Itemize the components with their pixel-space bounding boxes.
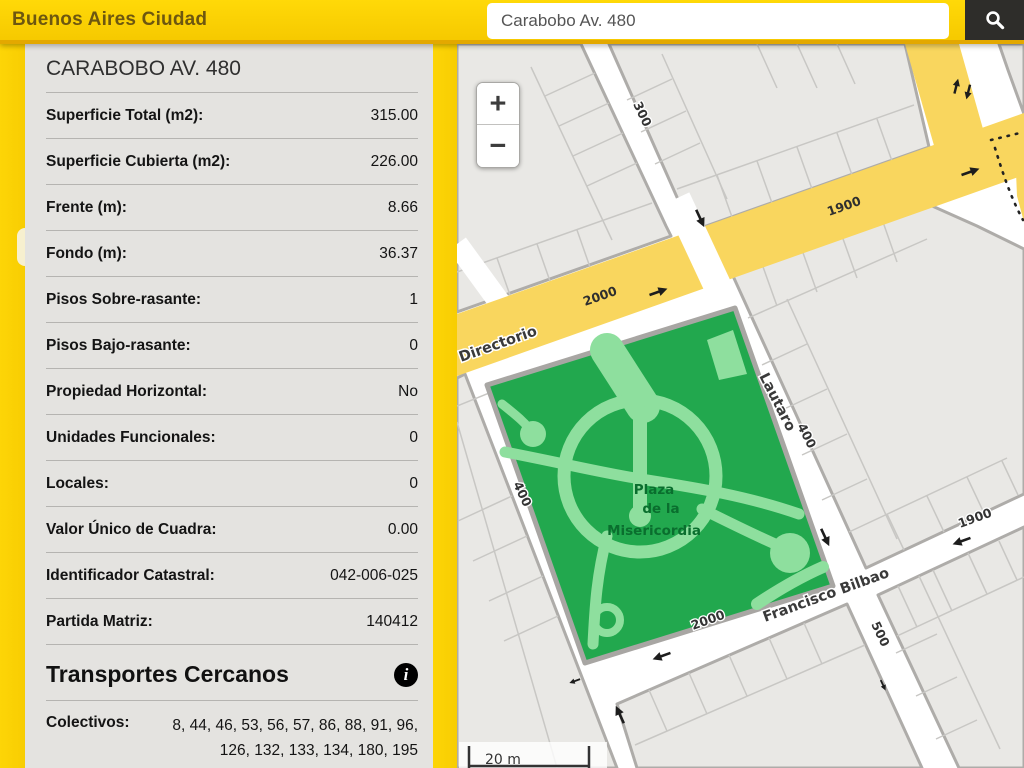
top-header: Buenos Aires Ciudad — [0, 0, 1024, 44]
row-label: Partida Matriz: — [46, 613, 153, 631]
search-input[interactable] — [487, 3, 949, 39]
app-window: Directorio 2000 1900 300 400 Lautaro 400… — [0, 0, 1024, 768]
table-row: Fondo (m): 36.37 — [46, 230, 418, 276]
row-label: Unidades Funcionales: — [46, 429, 216, 447]
row-label: Superficie Total (m2): — [46, 107, 203, 125]
row-value: 315.00 — [371, 107, 418, 125]
row-value: 226.00 — [371, 153, 418, 171]
search-icon — [971, 9, 1018, 31]
table-row: Propiedad Horizontal: No — [46, 368, 418, 414]
row-label: Pisos Sobre-rasante: — [46, 291, 201, 309]
row-label: Superficie Cubierta (m2): — [46, 153, 230, 171]
brand-logo[interactable]: Buenos Aires Ciudad — [12, 0, 207, 40]
parcel-info-panel: CARABOBO AV. 480 Superficie Total (m2): … — [25, 44, 433, 768]
plaza-circle-nw — [520, 421, 546, 447]
table-row: Superficie Total (m2): 315.00 — [46, 92, 418, 138]
row-value: 0 — [409, 475, 418, 493]
row-value: 140412 — [366, 613, 418, 631]
row-label: Fondo (m): — [46, 245, 127, 263]
table-row: Valor Único de Cuadra: 0.00 — [46, 506, 418, 552]
row-label: Identificador Catastral: — [46, 567, 215, 585]
table-row: Unidades Funcionales: 0 — [46, 414, 418, 460]
table-row: Pisos Bajo-rasante: 0 — [46, 322, 418, 368]
colectivos-value: 8, 44, 46, 53, 56, 57, 86, 88, 91, 96, 1… — [151, 714, 418, 764]
scale-label: 20 m — [485, 752, 521, 768]
table-row: Frente (m): 8.66 — [46, 184, 418, 230]
zoom-in-button[interactable]: + — [477, 83, 519, 125]
row-label: Frente (m): — [46, 199, 127, 217]
row-value: 0 — [409, 429, 418, 447]
row-value: No — [398, 383, 418, 401]
row-label: Propiedad Horizontal: — [46, 383, 207, 401]
table-row: Locales: 0 — [46, 460, 418, 506]
map-canvas[interactable]: Directorio 2000 1900 300 400 Lautaro 400… — [457, 44, 1024, 768]
svg-text:Misericordia: Misericordia — [607, 523, 701, 539]
row-value: 1 — [409, 291, 418, 309]
table-row: Identificador Catastral: 042-006-025 — [46, 552, 418, 598]
transport-section-header: Transportes Cercanos i — [46, 645, 418, 700]
svg-text:Plaza: Plaza — [634, 482, 675, 498]
panel-map-divider — [433, 44, 457, 768]
info-icon[interactable]: i — [394, 663, 418, 687]
table-row: Pisos Sobre-rasante: 1 — [46, 276, 418, 322]
table-row: Partida Matriz: 140412 — [46, 598, 418, 645]
row-value: 0 — [409, 337, 418, 355]
row-value: 0.00 — [388, 521, 418, 539]
zoom-out-button[interactable]: − — [477, 125, 519, 167]
row-value: 042-006-025 — [330, 567, 418, 585]
colectivos-row: Colectivos: 8, 44, 46, 53, 56, 57, 86, 8… — [46, 700, 418, 764]
left-yellow-band — [0, 44, 25, 768]
scale-bar: 20 m — [459, 742, 607, 768]
colectivos-label: Colectivos: — [46, 714, 151, 764]
search-button[interactable] — [965, 0, 1024, 40]
row-label: Locales: — [46, 475, 109, 493]
svg-text:de la: de la — [642, 501, 679, 517]
plaza-pond — [770, 533, 810, 573]
row-value: 36.37 — [379, 245, 418, 263]
row-label: Pisos Bajo-rasante: — [46, 337, 191, 355]
page-title: CARABOBO AV. 480 — [46, 44, 418, 92]
map-zoom-control: + − — [476, 82, 520, 168]
row-label: Valor Único de Cuadra: — [46, 521, 217, 539]
transport-heading: Transportes Cercanos — [46, 661, 289, 688]
row-value: 8.66 — [388, 199, 418, 217]
table-row: Superficie Cubierta (m2): 226.00 — [46, 138, 418, 184]
